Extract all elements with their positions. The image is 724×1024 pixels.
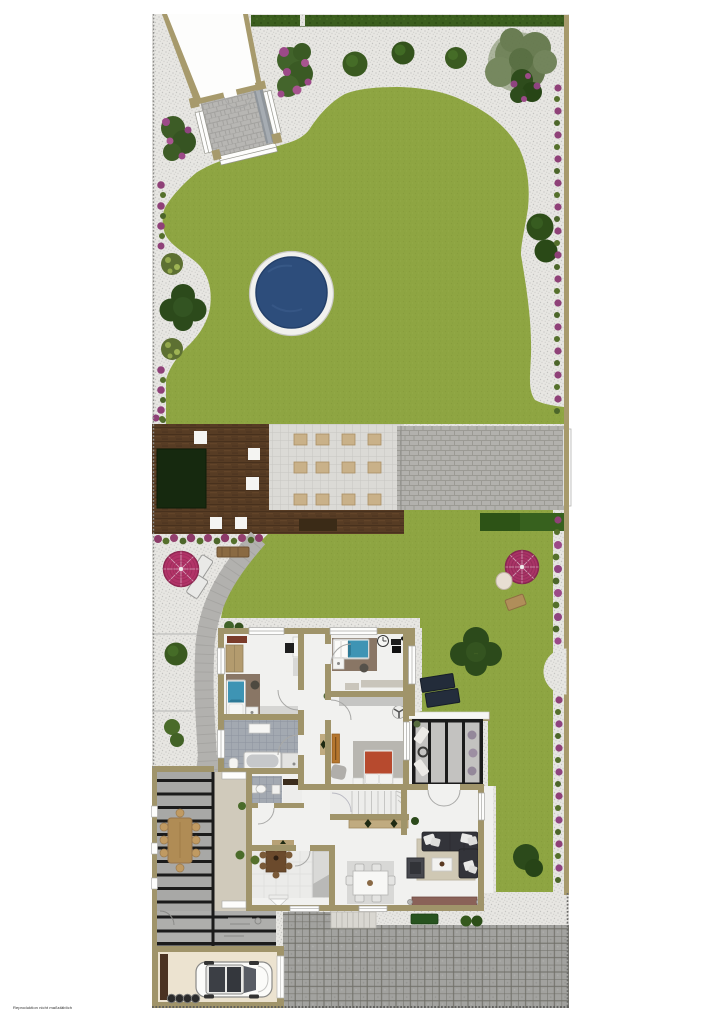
svg-text:Reproduktion nicht maßstäblich: Reproduktion nicht maßstäblich — [13, 1005, 72, 1010]
